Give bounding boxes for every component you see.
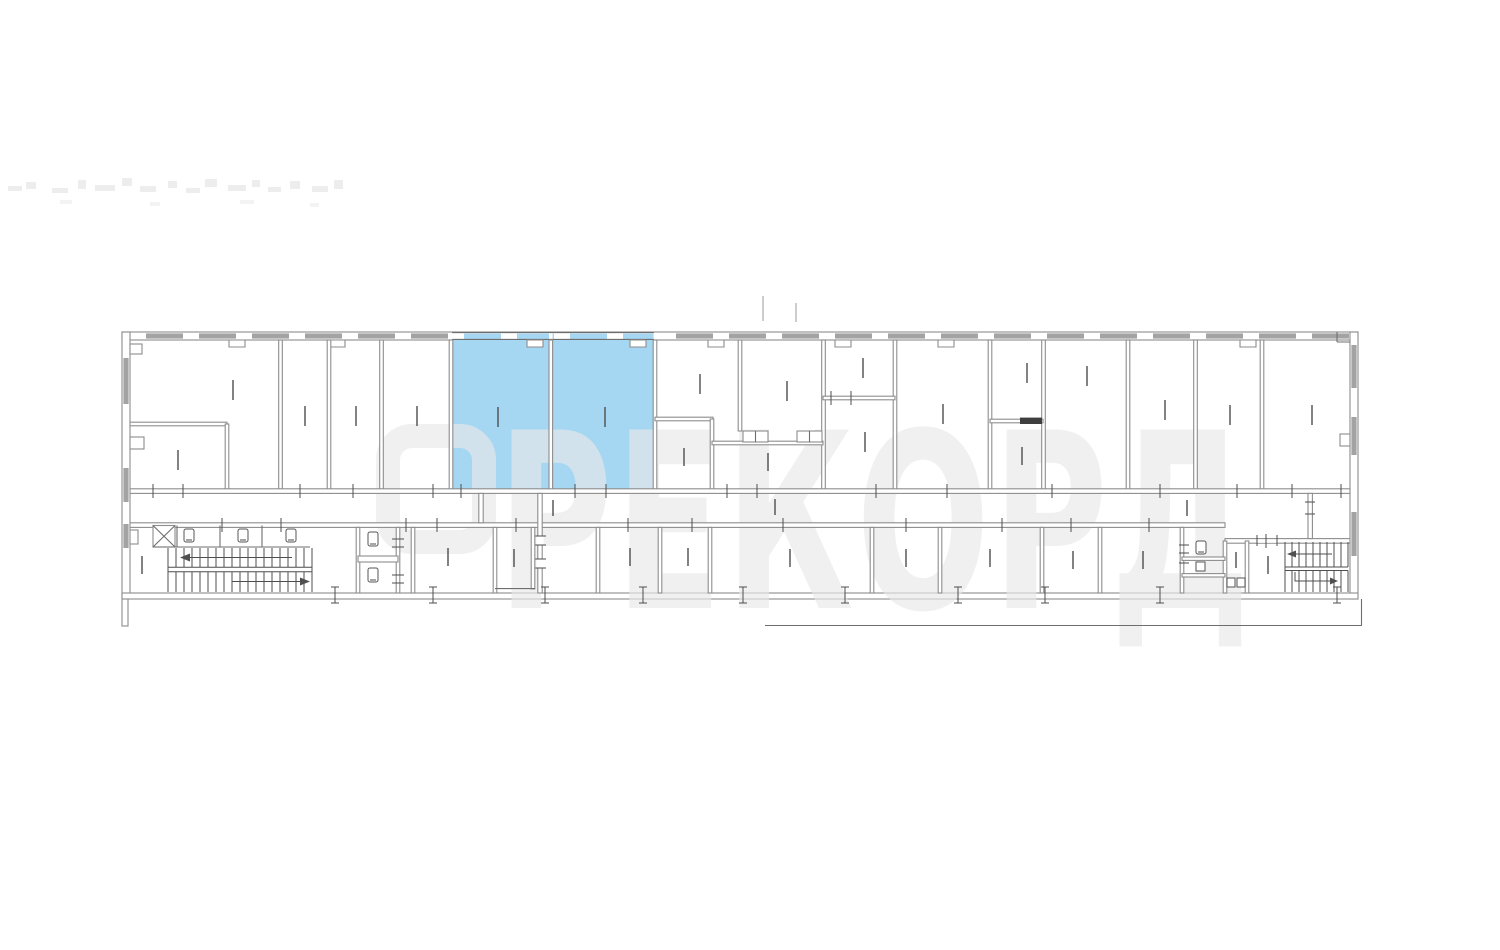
sink-icon bbox=[1237, 578, 1245, 587]
top-wall-windows bbox=[146, 333, 1349, 340]
toilet-icon bbox=[368, 532, 378, 546]
stairs-right bbox=[1285, 542, 1348, 592]
exterior-tick-marks bbox=[763, 296, 796, 322]
left-service-block bbox=[153, 526, 404, 593]
toilet-icon bbox=[1196, 541, 1206, 554]
sink-icon bbox=[1196, 562, 1205, 571]
floor-plan-page: РЕКОРД bbox=[0, 0, 1500, 950]
stairs-left bbox=[168, 548, 312, 592]
door-leaf bbox=[1020, 418, 1042, 424]
stair-arrow-down bbox=[232, 572, 300, 582]
sink-icon bbox=[1227, 578, 1235, 587]
corridor-divider bbox=[479, 493, 483, 522]
toilet-icon bbox=[184, 529, 194, 542]
left-wall-extension bbox=[122, 599, 128, 626]
toilet-icon bbox=[286, 529, 296, 542]
toilet-icon bbox=[238, 529, 248, 542]
floor-plan-drawing: РЕКОРД bbox=[0, 0, 1500, 950]
toilet-icon bbox=[368, 568, 378, 582]
corridor-divider bbox=[1308, 493, 1312, 538]
ghost-text-artifacts bbox=[8, 178, 343, 207]
